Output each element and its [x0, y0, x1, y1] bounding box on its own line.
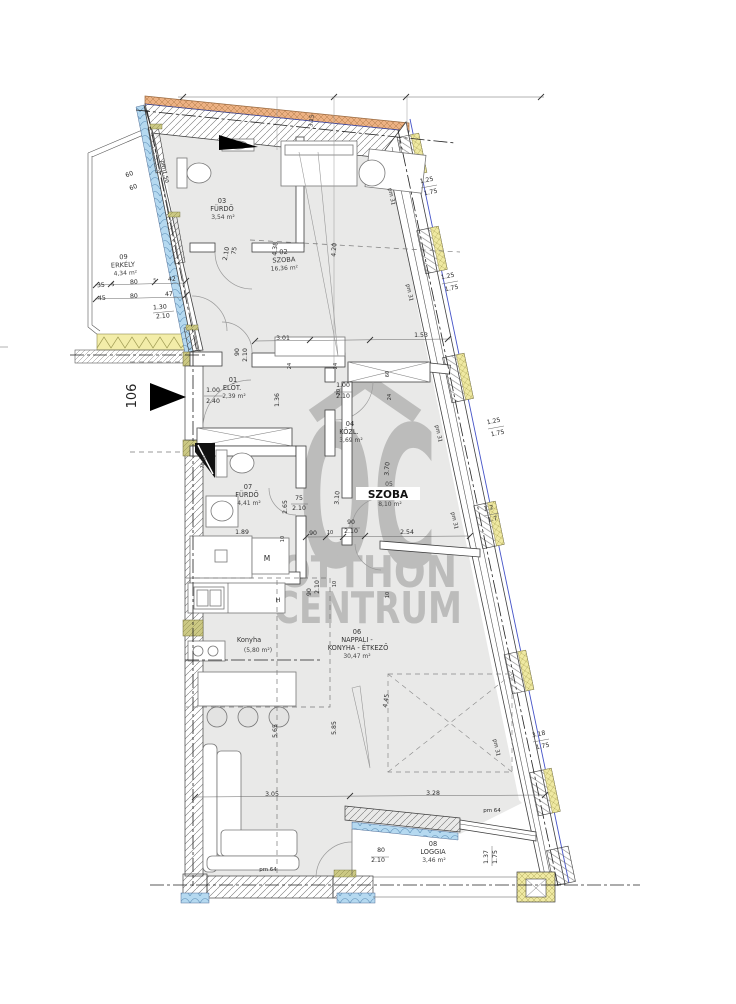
svg-text:06: 06	[353, 628, 361, 636]
dim-label: 3.28	[426, 790, 440, 797]
dim-label: 3.10	[334, 491, 342, 505]
dim-label: 2.65	[282, 500, 289, 514]
sofa-seat	[221, 830, 297, 856]
dim-label: 80	[130, 279, 138, 287]
toilet-tank	[177, 158, 187, 188]
dim-label: 24	[333, 363, 339, 369]
dim-label: 10	[327, 530, 333, 536]
stool-icon	[269, 707, 289, 727]
svg-text:NAPPALI -: NAPPALI -	[341, 636, 373, 644]
dim-label: 2.10	[156, 313, 170, 321]
dim-label: 1.25	[419, 176, 434, 186]
dim-label: 1.75	[492, 850, 499, 864]
dim-label: 4.20	[331, 243, 339, 257]
dim-label: 1.25	[440, 272, 455, 282]
dim-label: 42	[168, 276, 176, 284]
svg-text:08: 08	[429, 840, 437, 848]
dim-label: 1.75	[490, 429, 505, 439]
washer-label: M	[264, 554, 270, 563]
dim-label: 1.75	[535, 742, 550, 752]
unit-number: 106	[125, 384, 140, 409]
dim-label: 1.37	[483, 850, 490, 864]
dim-label: 5	[153, 278, 157, 284]
svg-text:04: 04	[346, 420, 354, 428]
dim-label: 1.75	[444, 284, 459, 294]
dim-label: 3.01	[276, 335, 290, 342]
sofa-back	[207, 856, 299, 870]
svg-text:01: 01	[229, 376, 237, 384]
island-counter	[198, 672, 296, 706]
svg-text:ERKÉLY: ERKÉLY	[111, 259, 136, 269]
svg-text:16,36 m²: 16,36 m²	[271, 264, 299, 272]
dim-label: 5.85	[331, 721, 338, 735]
svg-text:30,47 m²: 30,47 m²	[343, 653, 371, 660]
toilet-icon	[187, 163, 211, 183]
dim-label: 90	[234, 348, 241, 356]
svg-text:3,69 m²: 3,69 m²	[339, 437, 363, 444]
dim-label: 3.18	[531, 730, 546, 740]
dim-label: 10	[280, 536, 286, 542]
dim-label: 4.38	[272, 242, 280, 256]
dim-label: 80	[377, 847, 385, 854]
dim-label: 1.00	[336, 382, 350, 389]
dim-label: pm 64	[259, 867, 277, 873]
svg-text:ELŐT.: ELŐT.	[223, 383, 241, 392]
dim-label: 2.10	[344, 528, 358, 535]
stool-icon	[207, 707, 227, 727]
room-label-08: 08 LOGGIA 3,46 m²	[420, 840, 446, 864]
svg-text:Konyha: Konyha	[237, 636, 261, 644]
hob-label: H	[276, 596, 281, 604]
dim-label: 90	[306, 588, 313, 596]
watermark-centrum: CENTRUM	[274, 583, 462, 634]
dim-label: 20	[336, 389, 342, 395]
svg-text:8,10 m²: 8,10 m²	[378, 501, 402, 508]
dim-label: 5.65	[272, 724, 279, 738]
dim-label: 24	[387, 394, 393, 400]
dim-label: 90	[347, 519, 355, 526]
dim-label: 75	[295, 495, 303, 502]
dim-label: 60	[385, 371, 391, 377]
svg-text:(5,80 m²): (5,80 m²)	[244, 647, 272, 654]
dim-label: 24	[287, 363, 293, 369]
dim-label: 3.70	[384, 462, 392, 476]
dim-label: 1.00	[206, 387, 220, 394]
dim-label: 60	[125, 170, 135, 179]
stool-icon	[238, 707, 258, 727]
svg-text:3,54 m²: 3,54 m²	[211, 214, 235, 221]
dim-label: 1.25	[486, 417, 501, 427]
dim-label: 60	[129, 183, 139, 192]
dim-label: 2.40	[206, 398, 220, 405]
dim-label: 3.05	[265, 791, 279, 798]
dim-label: 45	[98, 295, 106, 303]
dim-label: 2.54	[400, 529, 414, 536]
dim-label: 10	[332, 581, 338, 587]
dim-label: 1.30	[153, 304, 167, 312]
dim-label: 1.53	[414, 332, 428, 339]
svg-text:05: 05	[385, 481, 393, 488]
dim-label: 5	[111, 282, 115, 288]
sofa-back	[203, 744, 217, 872]
svg-text:4,34 m²: 4,34 m²	[113, 269, 137, 277]
floor-plan: OC OTTHON CENTRUM	[0, 0, 736, 1004]
svg-text:FÜRDŐ: FÜRDŐ	[210, 204, 233, 213]
dim-label: 80	[130, 293, 138, 301]
svg-text:2,39 m²: 2,39 m²	[222, 393, 246, 400]
balcony-slab-hatch	[75, 350, 200, 363]
dim-label: 1.89	[235, 529, 249, 536]
dim-label: 90	[309, 530, 317, 537]
dim-label: 10	[385, 592, 391, 598]
svg-text:3,46 m²: 3,46 m²	[422, 857, 446, 864]
svg-text:FÜRDŐ: FÜRDŐ	[235, 490, 258, 499]
entrance-arrow-icon	[150, 383, 186, 411]
dim-label: 1.36	[274, 393, 281, 407]
svg-text:KÖZL.: KÖZL.	[339, 427, 358, 436]
dim-label: pm 64	[483, 808, 501, 814]
dim-label: 1.75	[423, 188, 438, 198]
dim-label: 47	[165, 291, 173, 299]
room-label-09: 09 ERKÉLY 4,34 m²	[110, 252, 138, 277]
svg-text:KONYHA - ÉTKEZŐ: KONYHA - ÉTKEZŐ	[328, 643, 389, 652]
toilet-icon	[230, 453, 254, 473]
washing-machine	[252, 538, 289, 574]
svg-text:07: 07	[244, 483, 252, 491]
dim-label: 2.10	[242, 348, 249, 362]
dim-label: 35	[97, 282, 105, 290]
dim-label: 2.10	[314, 580, 321, 594]
svg-text:LOGGIA: LOGGIA	[420, 848, 446, 856]
toilet-tank	[216, 450, 227, 477]
dim-label: 75	[230, 246, 238, 255]
svg-text:03: 03	[218, 197, 226, 205]
dim-label: 2.10	[371, 857, 385, 864]
dim-label: 2.10	[292, 505, 306, 512]
column-icon	[359, 160, 385, 186]
svg-text:SZOBA: SZOBA	[368, 489, 409, 501]
svg-text:4,41 m²: 4,41 m²	[237, 500, 261, 507]
